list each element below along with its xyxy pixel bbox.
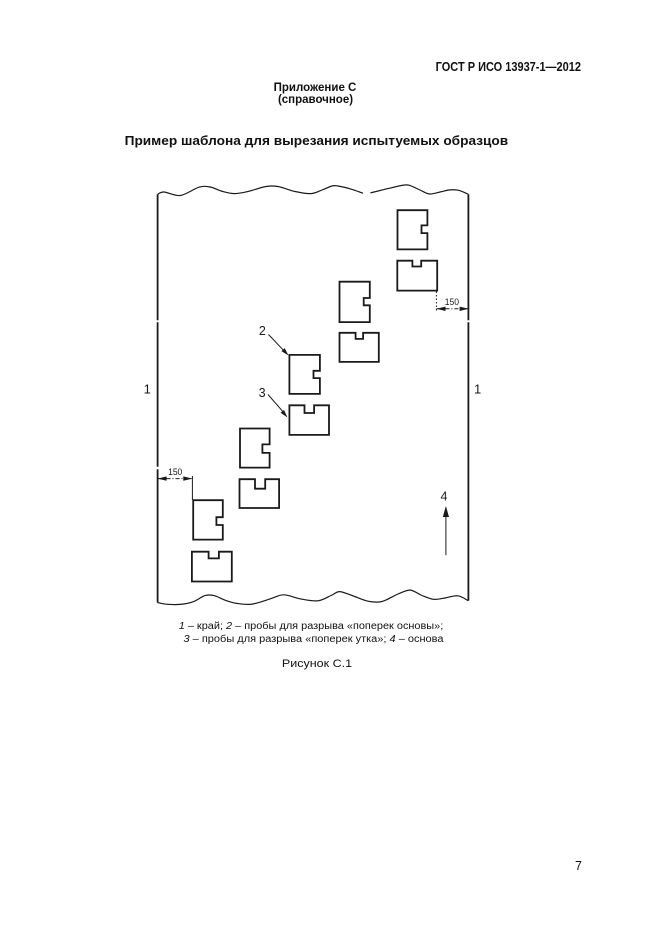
svg-text:1: 1: [474, 382, 481, 397]
svg-text:3: 3: [259, 386, 266, 400]
svg-text:1: 1: [144, 382, 151, 397]
svg-text:150: 150: [168, 467, 182, 477]
svg-text:2: 2: [259, 324, 266, 338]
svg-text:4: 4: [441, 489, 448, 503]
svg-text:150: 150: [445, 297, 459, 307]
